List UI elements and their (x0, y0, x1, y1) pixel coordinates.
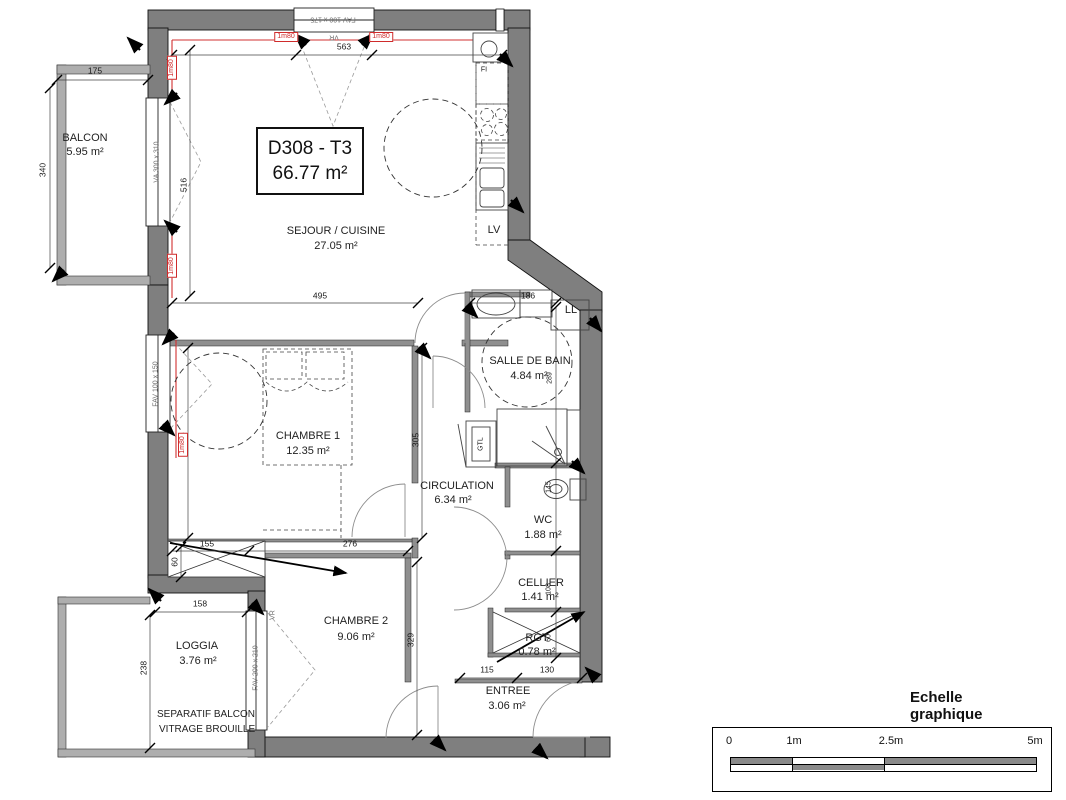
dim-entree-right: 130 (540, 666, 554, 675)
glazing-marker-1: 1m80 (274, 32, 298, 42)
dim-balcony-depth: 340 (39, 163, 48, 177)
separator-note-line2: VITRAGE BROUILLE (159, 724, 255, 735)
dim-cellier-depth: 108 (545, 583, 552, 595)
window-label-bay: VA 300 x 310 (153, 141, 160, 182)
scale-tick-2-5m: 2.5m (879, 735, 903, 747)
dim-placard-depth: 60 (171, 557, 180, 566)
fridge-label: FI (481, 66, 487, 73)
room-area-sdb: 4.84 m² (510, 371, 547, 383)
room-area-balcon: 5.95 m² (66, 147, 103, 159)
unit-area: 66.77 m² (273, 163, 348, 185)
dim-balcony-width: 175 (88, 67, 102, 76)
dim-bath-width: 186 (521, 292, 535, 301)
room-area-circulation: 6.34 m² (434, 495, 471, 507)
floorplan-page: D308 - T3 66.77 m² BALCON 5.95 m² SEJOUR… (0, 0, 1066, 800)
room-label-sejour: SEJOUR / CUISINE (287, 226, 385, 238)
dim-chambre2-depth: 329 (407, 633, 416, 647)
window-label-chambre1: FAV 100 x 150 (152, 361, 159, 406)
dim-wc-depth: 145 (545, 481, 552, 493)
scale-tick-1m: 1m (786, 735, 801, 747)
room-label-entree: ENTREE (486, 686, 531, 698)
scale-tick-0: 0 (726, 735, 732, 747)
room-label-loggia: LOGGIA (176, 641, 218, 653)
room-label-circulation: CIRCULATION (420, 481, 494, 493)
scale-bar (730, 757, 1037, 772)
dim-loggia-width: 158 (193, 600, 207, 609)
scale-tick-5m: 5m (1027, 735, 1042, 747)
dim-chambre1-depth-right: 305 (412, 433, 421, 447)
floorplan-drawing (0, 0, 1066, 800)
dim-loggia-depth: 238 (140, 661, 149, 675)
room-label-sdb: SALLE DE BAIN (489, 356, 570, 368)
shutter-label-top: VR (329, 33, 339, 40)
dim-chambre1-bottom: 276 (343, 540, 357, 549)
dim-placard-width: 155 (200, 540, 214, 549)
duct-label: GTL (477, 437, 484, 451)
dim-rgt-depth: 60 (545, 634, 552, 642)
glazing-marker-2: 1m80 (369, 32, 393, 42)
room-area-chambre2: 9.06 m² (337, 632, 374, 644)
dim-chambre1-width: 495 (313, 292, 327, 301)
room-area-sejour: 27.05 m² (314, 241, 357, 253)
dim-sejour-width: 563 (337, 43, 351, 52)
room-area-chambre1: 12.35 m² (286, 446, 329, 458)
separator-note-line1: SEPARATIF BALCON (157, 709, 255, 720)
scale-title: Echelle graphique (910, 689, 1014, 723)
glazing-marker-4: 1m80 (167, 254, 177, 278)
dishwasher-label: LV (488, 225, 501, 237)
glazing-marker-3: 1m80 (167, 56, 177, 80)
room-label-wc: WC (534, 515, 552, 527)
room-area-loggia: 3.76 m² (179, 656, 216, 668)
dim-bath-depth: 289 (546, 372, 553, 384)
window-label-loggia: FAV 200 x 210 (252, 645, 259, 690)
room-label-balcon: BALCON (62, 133, 107, 145)
room-label-chambre2: CHAMBRE 2 (324, 616, 388, 628)
room-area-rgt: 0.78 m² (518, 647, 555, 659)
room-area-wc: 1.88 m² (524, 530, 561, 542)
dim-entree-left: 115 (480, 666, 494, 675)
room-label-chambre1: CHAMBRE 1 (276, 431, 340, 443)
dim-bay-length: 516 (180, 178, 189, 192)
glazing-marker-5: 1m80 (178, 433, 188, 457)
shutter-label-loggia: VR (269, 610, 276, 620)
washer-label: LL (565, 305, 577, 317)
room-label-cellier: CELLIER (518, 578, 564, 590)
room-area-entree: 3.06 m² (488, 701, 525, 713)
unit-title-box: D308 - T3 66.77 m² (256, 127, 364, 195)
room-area-cellier: 1.41 m² (521, 592, 558, 604)
window-label-top: FAV 100 x 175 (310, 15, 355, 22)
unit-id: D308 - T3 (268, 138, 352, 160)
